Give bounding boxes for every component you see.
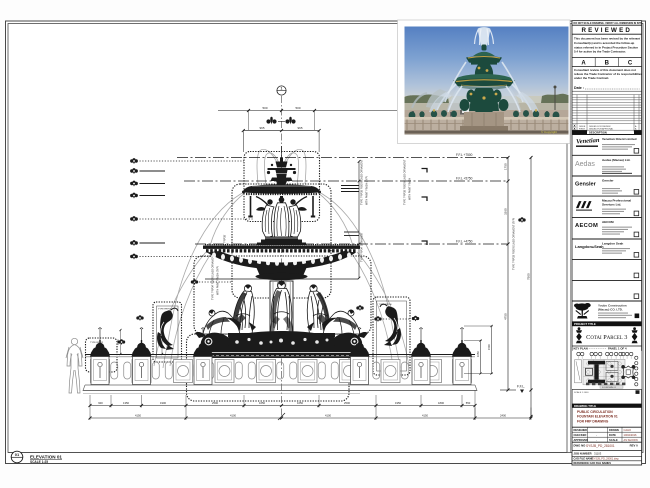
svg-text:JOB NUMBER: JOB NUMBER [574, 452, 592, 456]
svg-text:1050: 1050 [476, 351, 480, 357]
svg-text:KEY PLAN: KEY PLAN [574, 347, 588, 351]
svg-text:WITH PAINT FINISH (TYP): WITH PAINT FINISH (TYP) [366, 176, 369, 205]
svg-text:3260: 3260 [503, 208, 507, 215]
svg-text:ISSUE: ISSUE [579, 126, 586, 128]
svg-text:TYPE FRP06: TYPE FRP06 [158, 309, 172, 311]
svg-text:1950: 1950 [395, 401, 401, 405]
svg-text:DWG NO: DWG NO [574, 444, 587, 448]
svg-text:status referred to in Project: status referred to in Project Procedure … [574, 45, 638, 49]
svg-text:ELEVATION 01: ELEVATION 01 [30, 455, 62, 460]
svg-text:SYSJB_PD_281001: SYSJB_PD_281001 [586, 444, 615, 448]
svg-text:REVIEWED: REVIEWED [581, 27, 632, 34]
svg-text:WITH PAINT FINISH: WITH PAINT FINISH [409, 178, 412, 200]
svg-text:Aedas (Macau) Ltd.: Aedas (Macau) Ltd. [602, 158, 631, 162]
svg-text:FOR FRP DRAWING: FOR FRP DRAWING [577, 419, 609, 423]
svg-text:AECOM: AECOM [575, 223, 598, 229]
svg-text:ISSUED FOR REVIEW: ISSUED FOR REVIEW [589, 126, 611, 128]
svg-text:B: B [605, 61, 610, 67]
svg-text:2400: 2400 [500, 414, 506, 418]
svg-text:Gensler: Gensler [575, 182, 597, 188]
svg-text:7500: 7500 [526, 273, 530, 280]
svg-text:FOUNTAIN 01: FOUNTAIN 01 [602, 386, 617, 389]
svg-text:-: - [596, 434, 597, 437]
svg-text:A: A [581, 61, 586, 67]
svg-text:C: C [628, 61, 633, 67]
svg-text:1350: 1350 [123, 401, 129, 405]
svg-text:965: 965 [259, 126, 264, 130]
svg-text:1: 1 [281, 87, 283, 91]
svg-text:500: 500 [262, 106, 267, 110]
svg-text:F.F.L +4750: F.F.L +4750 [456, 239, 473, 243]
svg-text:500: 500 [295, 106, 300, 110]
svg-text:10/04/2016: 10/04/2016 [624, 433, 638, 437]
svg-text:TYPE 'FRP04' ORNAMENT: TYPE 'FRP04' ORNAMENT [361, 232, 364, 262]
svg-text:© Copyright: © Copyright [541, 130, 557, 134]
svg-text:REFERENCE CAD FILE NAMES: REFERENCE CAD FILE NAMES [574, 462, 612, 465]
svg-text:AS SHOWN: AS SHOWN [624, 438, 638, 442]
svg-text:Gensler: Gensler [602, 179, 614, 183]
svg-text:REV 0: REV 0 [630, 444, 639, 448]
svg-text:5.4 for action by the Trade Co: 5.4 for action by the Trade Contractor. [574, 50, 626, 54]
svg-text:1500: 1500 [487, 344, 491, 350]
svg-text:TYPE 'FRP05' FIBERGLASS ORNAME: TYPE 'FRP05' FIBERGLASS ORNAMENT [361, 159, 364, 205]
svg-text:Date :: Date : [574, 86, 584, 90]
svg-text:This document has been revised: This document has been revised by the re… [574, 37, 640, 41]
svg-text:PANEL 1 OF 4: PANEL 1 OF 4 [608, 347, 627, 351]
svg-text:2500: 2500 [344, 401, 350, 405]
svg-text:SCALE 1:1000: SCALE 1:1000 [574, 391, 589, 394]
svg-text:01: 01 [15, 452, 20, 457]
svg-text:DRAWN: DRAWN [609, 428, 619, 432]
svg-text:DESIGNED: DESIGNED [574, 428, 588, 432]
svg-text:PUBLIC CIRCULATION: PUBLIC CIRCULATION [577, 410, 613, 414]
svg-text:965: 965 [297, 126, 302, 130]
svg-text:4750: 4750 [503, 313, 507, 320]
svg-text:1900: 1900 [160, 401, 166, 405]
svg-text:SCALE: SCALE [609, 438, 618, 442]
svg-text:FOUNTAIN ELEVATION 01: FOUNTAIN ELEVATION 01 [577, 415, 618, 419]
svg-text:Venetian Orient Limited: Venetian Orient Limited [602, 137, 637, 141]
svg-text:Aedas: Aedas [575, 161, 595, 168]
svg-text:1650: 1650 [259, 401, 265, 405]
svg-text:CHECKED: CHECKED [574, 433, 587, 437]
svg-text:DATE: DATE [609, 433, 616, 437]
svg-text:under the Trade Contract.: under the Trade Contract. [574, 76, 609, 80]
svg-text:Services Ltd.: Services Ltd. [602, 202, 621, 206]
svg-text:TYPE 'FRP03' FIBERGLASS ORNAME: TYPE 'FRP03' FIBERGLASS ORNAMENT (TYP) [513, 218, 516, 270]
svg-text:DESCRIPTION: DESCRIPTION [589, 131, 607, 135]
svg-text:DRAWING TITLE: DRAWING TITLE [574, 404, 596, 408]
svg-text:4150: 4150 [422, 414, 428, 418]
svg-text:WITH PAINT FINISH (TYP): WITH PAINT FINISH (TYP) [217, 266, 220, 295]
svg-text:SYSJB_PD_28001.dwg: SYSJB_PD_28001.dwg [592, 458, 619, 461]
svg-text:DO NOT SCALE DRAWING. VERIFY A: DO NOT SCALE DRAWING. VERIFY ALL DIMENSI… [574, 22, 644, 25]
svg-text:4100: 4100 [325, 414, 331, 418]
svg-text:1800: 1800 [438, 401, 444, 405]
svg-text:Langdon&Seah: Langdon&Seah [575, 244, 604, 249]
svg-text:4150: 4150 [135, 414, 141, 418]
svg-text:2500: 2500 [212, 401, 218, 405]
svg-text:AECOM: AECOM [602, 220, 614, 224]
svg-text:APPROVED: APPROVED [574, 438, 589, 442]
svg-text:COTAI PARCEL 3: COTAI PARCEL 3 [586, 334, 627, 341]
svg-text:1050: 1050 [117, 339, 120, 345]
svg-text:CAHO: CAHO [624, 428, 632, 432]
svg-text:Langdon Seah: Langdon Seah [602, 242, 623, 246]
svg-text:SCALE 1:25: SCALE 1:25 [30, 460, 48, 464]
svg-text:1750: 1750 [503, 163, 507, 170]
svg-text:550: 550 [466, 401, 471, 405]
svg-text:-: - [596, 439, 597, 442]
svg-text:F.F.L +5750: F.F.L +5750 [456, 176, 473, 180]
svg-text:F.F.L +7500: F.F.L +7500 [456, 153, 473, 157]
svg-text:4100: 4100 [230, 414, 236, 418]
svg-text:1650: 1650 [297, 401, 303, 405]
svg-text:TYPE 'FRP05' FIBERGLASS ORNAME: TYPE 'FRP05' FIBERGLASS ORNAMENT [404, 159, 407, 205]
svg-text:TYPE 'FRP04' FIBERGLASS ORNAME: TYPE 'FRP04' FIBERGLASS ORNAMENT [212, 254, 215, 300]
svg-text:PROJECT TITLE: PROJECT TITLE [574, 322, 596, 326]
svg-text:F.F.L.: F.F.L. [517, 385, 525, 389]
svg-text:(Macau) CO. LTD.: (Macau) CO. LTD. [598, 307, 623, 311]
svg-text:31103: 31103 [594, 452, 602, 456]
svg-text:CAD FILE NAME: CAD FILE NAME [574, 458, 594, 461]
svg-text:Consultant(s) and is accorded: Consultant(s) and is accorded the follow… [574, 41, 634, 45]
svg-text:900: 900 [98, 401, 103, 405]
